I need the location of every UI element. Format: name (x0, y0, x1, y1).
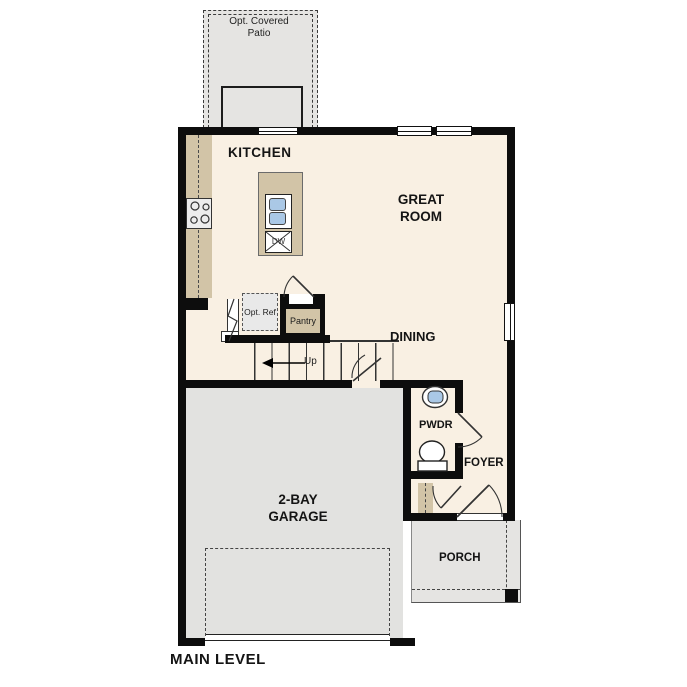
sink-basin (269, 198, 286, 211)
wall-stairs-top (225, 335, 330, 343)
patio-label: Opt. Covered Patio (224, 16, 294, 40)
porch-label: PORCH (439, 551, 481, 565)
powder-label: PWDR (419, 419, 453, 433)
stair-side-edge (330, 340, 399, 342)
floor-plan: DW Opt. Ref Pantry (0, 0, 687, 687)
wall-garage-top-left (178, 380, 352, 388)
patio-slider-door (259, 127, 297, 135)
front-door-threshold (457, 513, 503, 521)
optional-refrigerator: Opt. Ref (242, 293, 278, 331)
great-room-label: GREAT ROOM (382, 192, 460, 226)
wall-garage-bottom-right (390, 638, 415, 646)
garage-door-dashed-outline (205, 548, 390, 636)
stove-icon (186, 198, 212, 229)
sink-basin (269, 212, 286, 225)
dishwasher-icon: DW (265, 231, 292, 253)
pantry-door-opening (289, 294, 313, 304)
foyer-closet (418, 483, 433, 513)
window (504, 303, 515, 341)
window (397, 126, 432, 136)
wall-garage-bottom-left (178, 638, 205, 646)
dishwasher-label: DW (266, 237, 291, 246)
kitchen-label: KITCHEN (228, 145, 292, 162)
wall-powder-east-lower (455, 443, 463, 479)
dining-label: DINING (390, 329, 436, 345)
porch-column (505, 589, 518, 602)
up-label: Up (304, 356, 317, 368)
plan-title: MAIN LEVEL (170, 651, 266, 670)
wall-foyer-bottom-right (503, 513, 515, 521)
wall-counter-stub (186, 298, 208, 310)
porch-dashed-edge (412, 589, 520, 590)
stair-treads (238, 343, 399, 381)
foyer-label: FOYER (464, 456, 504, 470)
wall-garage-top-right (380, 380, 463, 388)
wall-powder-east-upper (455, 388, 463, 413)
wall-garage-right (403, 388, 411, 513)
patio-stoop (221, 86, 303, 129)
closet-rod-line (425, 483, 426, 513)
window (436, 126, 472, 136)
wall-foyer-bottom-left (403, 513, 457, 521)
kitchen-sink-icon (265, 194, 292, 229)
pantry-room: Pantry (286, 309, 320, 333)
wall-powder-south (411, 471, 455, 479)
garage-label: 2-BAY GARAGE (258, 492, 338, 526)
